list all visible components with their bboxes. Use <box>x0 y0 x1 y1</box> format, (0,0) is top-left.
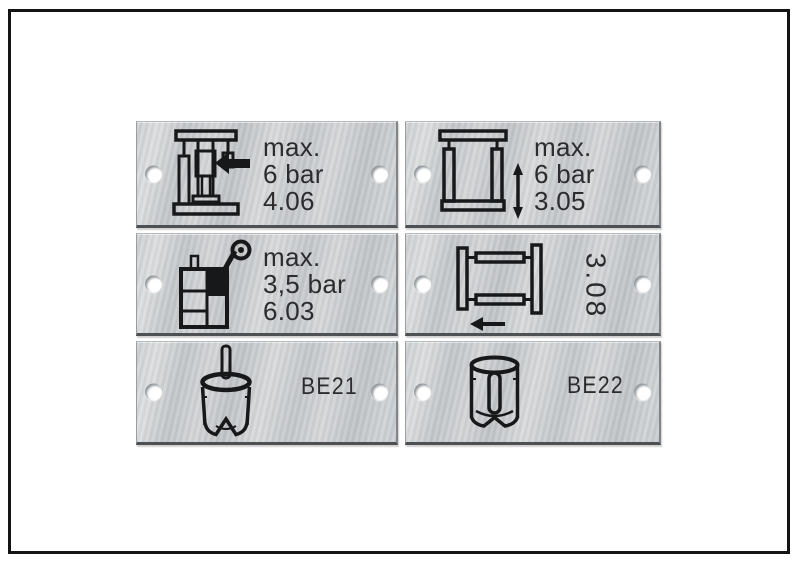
text-line: BE22 <box>567 372 624 399</box>
mounting-hole <box>414 165 431 182</box>
plate-text: BE21 <box>301 373 358 401</box>
label-plate-be21: BE21 <box>136 341 398 445</box>
plate-text: max. 6 bar 3.05 <box>534 134 595 215</box>
frame-left-arrow-icon <box>456 243 543 332</box>
mounting-hole <box>371 275 388 292</box>
label-plate-3-05: max. 6 bar 3.05 <box>405 121 661 228</box>
label-plate-4-06: max. 6 bar 4.06 <box>136 121 398 228</box>
plate-text: BE22 <box>567 372 624 400</box>
text-line: 3.08 <box>579 252 611 319</box>
label-plate-3-08: 3.08 <box>405 233 661 336</box>
tank-spray-nozzle-icon <box>169 239 259 331</box>
text-line: 6 bar <box>534 161 595 188</box>
plate-text: max. 6 bar 4.06 <box>263 134 324 215</box>
label-plate-6-03: max. 3,5 bar 6.03 <box>136 233 398 336</box>
plate-text: 3.08 <box>569 234 621 337</box>
press-clamp-left-arrow-icon <box>173 129 251 216</box>
plate-text: max. 3,5 bar 6.03 <box>263 244 346 325</box>
die-cylinder-center-pin-icon <box>466 355 523 431</box>
text-line: 6 bar <box>263 161 324 188</box>
text-line: max. <box>263 134 324 161</box>
mounting-hole <box>414 275 431 292</box>
text-line: 3.05 <box>534 188 595 215</box>
mounting-hole <box>371 384 388 401</box>
mounting-hole <box>371 165 388 182</box>
mounting-hole <box>145 165 162 182</box>
mounting-hole <box>145 384 162 401</box>
text-line: BE21 <box>301 373 358 400</box>
mounting-hole <box>634 384 651 401</box>
notched-die-cylinder-icon <box>199 345 253 440</box>
text-line: 6.03 <box>263 298 346 325</box>
text-line: max. <box>263 244 346 271</box>
catalog-photo: max. 6 bar 4.06 max. 6 bar 3.05 <box>0 0 800 565</box>
mounting-hole <box>145 275 162 292</box>
mounting-hole <box>634 165 651 182</box>
text-line: 3,5 bar <box>263 271 346 298</box>
figure-border <box>8 9 790 554</box>
mounting-hole <box>414 384 431 401</box>
text-line: max. <box>534 134 595 161</box>
mounting-hole <box>634 275 651 292</box>
frame-vertical-double-arrow-icon <box>436 129 528 221</box>
label-plate-be22: BE22 <box>405 341 661 445</box>
text-line: 4.06 <box>263 188 324 215</box>
